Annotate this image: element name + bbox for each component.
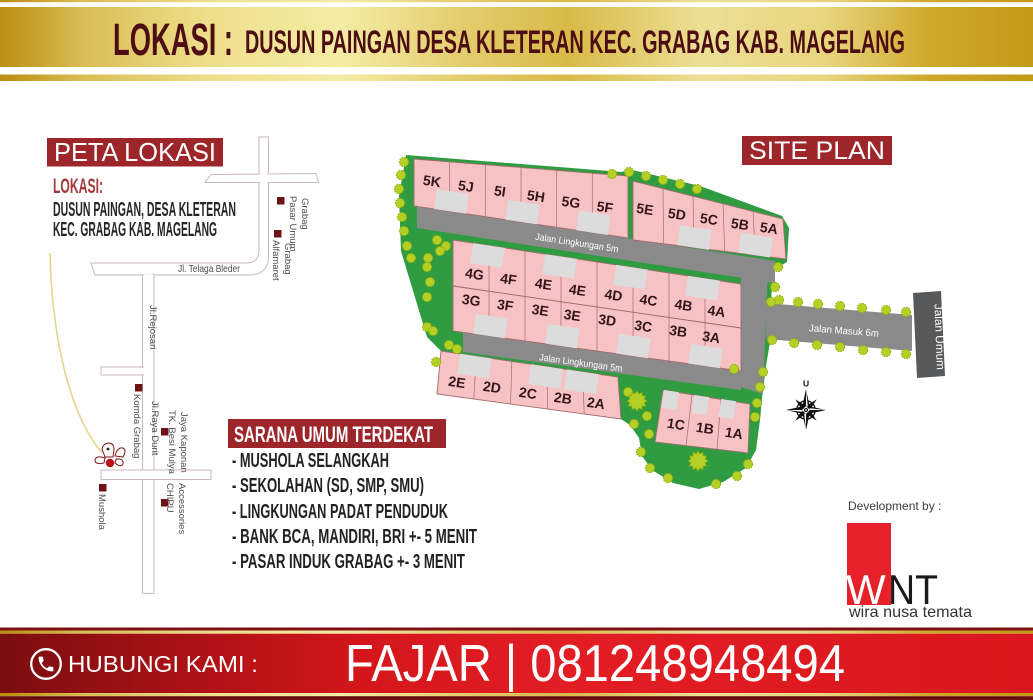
svg-text:KEC. GRABAG KAB. MAGELANG: KEC. GRABAG KAB. MAGELANG — [53, 219, 217, 241]
svg-text:2E: 2E — [447, 373, 466, 391]
svg-text:5F: 5F — [596, 198, 615, 216]
svg-text:4E: 4E — [568, 281, 587, 299]
svg-text:- PASAR INDUK GRABAG +- 3 MENI: - PASAR INDUK GRABAG +- 3 MENIT — [232, 551, 465, 573]
svg-text:5E: 5E — [635, 200, 654, 218]
svg-text:DUSUN PAINGAN DESA KLETERAN KE: DUSUN PAINGAN DESA KLETERAN KEC. GRABAG … — [245, 24, 905, 60]
svg-text:4A: 4A — [707, 302, 727, 320]
svg-text:2C: 2C — [518, 384, 538, 402]
svg-text:LOKASI :: LOKASI : — [113, 14, 233, 65]
svg-text:5C: 5C — [699, 210, 719, 228]
svg-text:5D: 5D — [667, 205, 687, 223]
svg-text:DUSUN PAINGAN, DESA KLETERAN: DUSUN PAINGAN, DESA KLETERAN — [53, 199, 236, 221]
svg-text:3F: 3F — [496, 296, 515, 314]
svg-text:3C: 3C — [633, 317, 653, 335]
svg-text:5K: 5K — [422, 172, 442, 190]
svg-text:Jl.Raya Durit: Jl.Raya Durit — [149, 401, 160, 456]
svg-text:CHIPU: CHIPU — [164, 483, 175, 513]
svg-text:3B: 3B — [668, 322, 688, 340]
svg-text:- SEKOLAHAN (SD, SMP, SMU): - SEKOLAHAN (SD, SMP, SMU) — [232, 475, 424, 497]
svg-text:1C: 1C — [666, 415, 686, 433]
svg-text:FAJAR | 081248948494: FAJAR | 081248948494 — [345, 635, 845, 693]
svg-text:- LINGKUNGAN PADAT PENDUDUK: - LINGKUNGAN PADAT PENDUDUK — [232, 501, 448, 523]
svg-text:2B: 2B — [553, 389, 573, 407]
svg-text:1A: 1A — [724, 424, 744, 442]
svg-text:4C: 4C — [639, 291, 659, 309]
svg-text:Alfamaret: Alfamaret — [270, 240, 281, 281]
svg-text:3E: 3E — [563, 306, 582, 324]
svg-text:Grabag: Grabag — [282, 243, 293, 275]
svg-text:4G: 4G — [464, 265, 485, 284]
svg-text:TK. Besi Mulya: TK. Besi Mulya — [166, 410, 177, 475]
svg-text:3A: 3A — [701, 328, 721, 346]
svg-text:SARANA UMUM TERDEKAT: SARANA UMUM TERDEKAT — [234, 422, 433, 447]
svg-text:HUBUNGI KAMI :: HUBUNGI KAMI : — [68, 651, 258, 677]
svg-text:PETA LOKASI: PETA LOKASI — [54, 137, 216, 167]
svg-text:- MUSHOLA SELANGKAH: - MUSHOLA SELANGKAH — [232, 450, 389, 472]
svg-text:U: U — [803, 379, 809, 389]
svg-text:Accessories: Accessories — [176, 483, 187, 534]
svg-text:1B: 1B — [695, 419, 715, 437]
svg-text:wira nusa temata: wira nusa temata — [848, 604, 972, 621]
svg-text:LOKASI:: LOKASI: — [53, 175, 103, 198]
svg-text:3D: 3D — [597, 311, 617, 329]
svg-text:5G: 5G — [561, 193, 582, 212]
svg-text:Komda Grabag: Komda Grabag — [131, 394, 142, 458]
svg-text:5J: 5J — [457, 177, 475, 195]
svg-text:2D: 2D — [482, 378, 502, 396]
svg-text:2A: 2A — [586, 394, 606, 412]
svg-text:5I: 5I — [493, 182, 507, 200]
svg-text:Jl.Rejosari: Jl.Rejosari — [147, 305, 158, 349]
svg-text:Mushola: Mushola — [96, 494, 107, 531]
svg-text:5A: 5A — [759, 219, 779, 237]
svg-text:Development by :: Development by : — [848, 499, 941, 513]
svg-text:3E: 3E — [531, 301, 550, 319]
svg-text:Jl. Telaga Bleder: Jl. Telaga Bleder — [178, 264, 241, 275]
svg-text:Grabag: Grabag — [299, 198, 310, 230]
svg-text:3G: 3G — [461, 291, 482, 310]
svg-text:Jaya Kaponan: Jaya Kaponan — [178, 412, 189, 473]
svg-text:4F: 4F — [499, 270, 518, 288]
svg-text:Jalan Umum: Jalan Umum — [932, 304, 946, 370]
svg-text:4D: 4D — [604, 286, 624, 304]
svg-text:4E: 4E — [534, 275, 553, 293]
svg-text:SITE PLAN: SITE PLAN — [749, 137, 885, 165]
svg-text:5B: 5B — [730, 215, 750, 233]
svg-text:- BANK BCA, MANDIRI, BRI +- 5: - BANK BCA, MANDIRI, BRI +- 5 MENIT — [232, 526, 477, 548]
svg-text:4B: 4B — [674, 296, 694, 314]
svg-text:5H: 5H — [526, 187, 546, 205]
